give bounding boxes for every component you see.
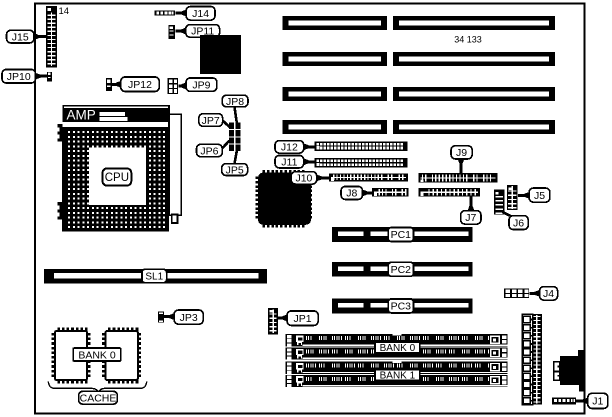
svg-text:AMP: AMP (67, 107, 96, 122)
svg-text:J5: J5 (534, 190, 545, 202)
svg-text:BANK 0: BANK 0 (380, 343, 416, 354)
svg-text:J12: J12 (281, 142, 298, 154)
svg-text:CACHE: CACHE (80, 393, 117, 405)
svg-text:BANK 1: BANK 1 (380, 371, 416, 382)
svg-text:JP9: JP9 (192, 79, 210, 91)
svg-text:BANK 0: BANK 0 (78, 349, 116, 361)
svg-text:JP8: JP8 (226, 96, 244, 108)
svg-text:J8: J8 (346, 188, 357, 200)
svg-text:J15: J15 (12, 31, 29, 43)
svg-text:J1: J1 (592, 396, 603, 408)
svg-text:JP10: JP10 (7, 71, 31, 83)
svg-text:PC1: PC1 (391, 229, 412, 241)
svg-text:J6: J6 (513, 217, 524, 229)
svg-text:SL1: SL1 (145, 272, 163, 283)
svg-text:J11: J11 (281, 156, 297, 168)
svg-text:34 133: 34 133 (454, 35, 482, 45)
svg-text:CPU: CPU (105, 172, 129, 184)
svg-text:J14: J14 (192, 8, 209, 20)
svg-text:J9: J9 (456, 147, 467, 159)
svg-text:J10: J10 (295, 173, 312, 185)
svg-text:JP3: JP3 (180, 312, 198, 324)
svg-text:JP12: JP12 (128, 79, 152, 91)
svg-text:JP7: JP7 (202, 115, 220, 127)
svg-text:J4: J4 (543, 288, 554, 300)
svg-text:JP5: JP5 (226, 164, 244, 176)
svg-text:14: 14 (59, 6, 70, 17)
svg-text:J7: J7 (465, 212, 476, 224)
svg-text:PC3: PC3 (391, 301, 412, 313)
svg-text:JP6: JP6 (200, 145, 218, 157)
svg-text:PC2: PC2 (391, 264, 412, 276)
svg-text:JP1: JP1 (294, 313, 312, 325)
